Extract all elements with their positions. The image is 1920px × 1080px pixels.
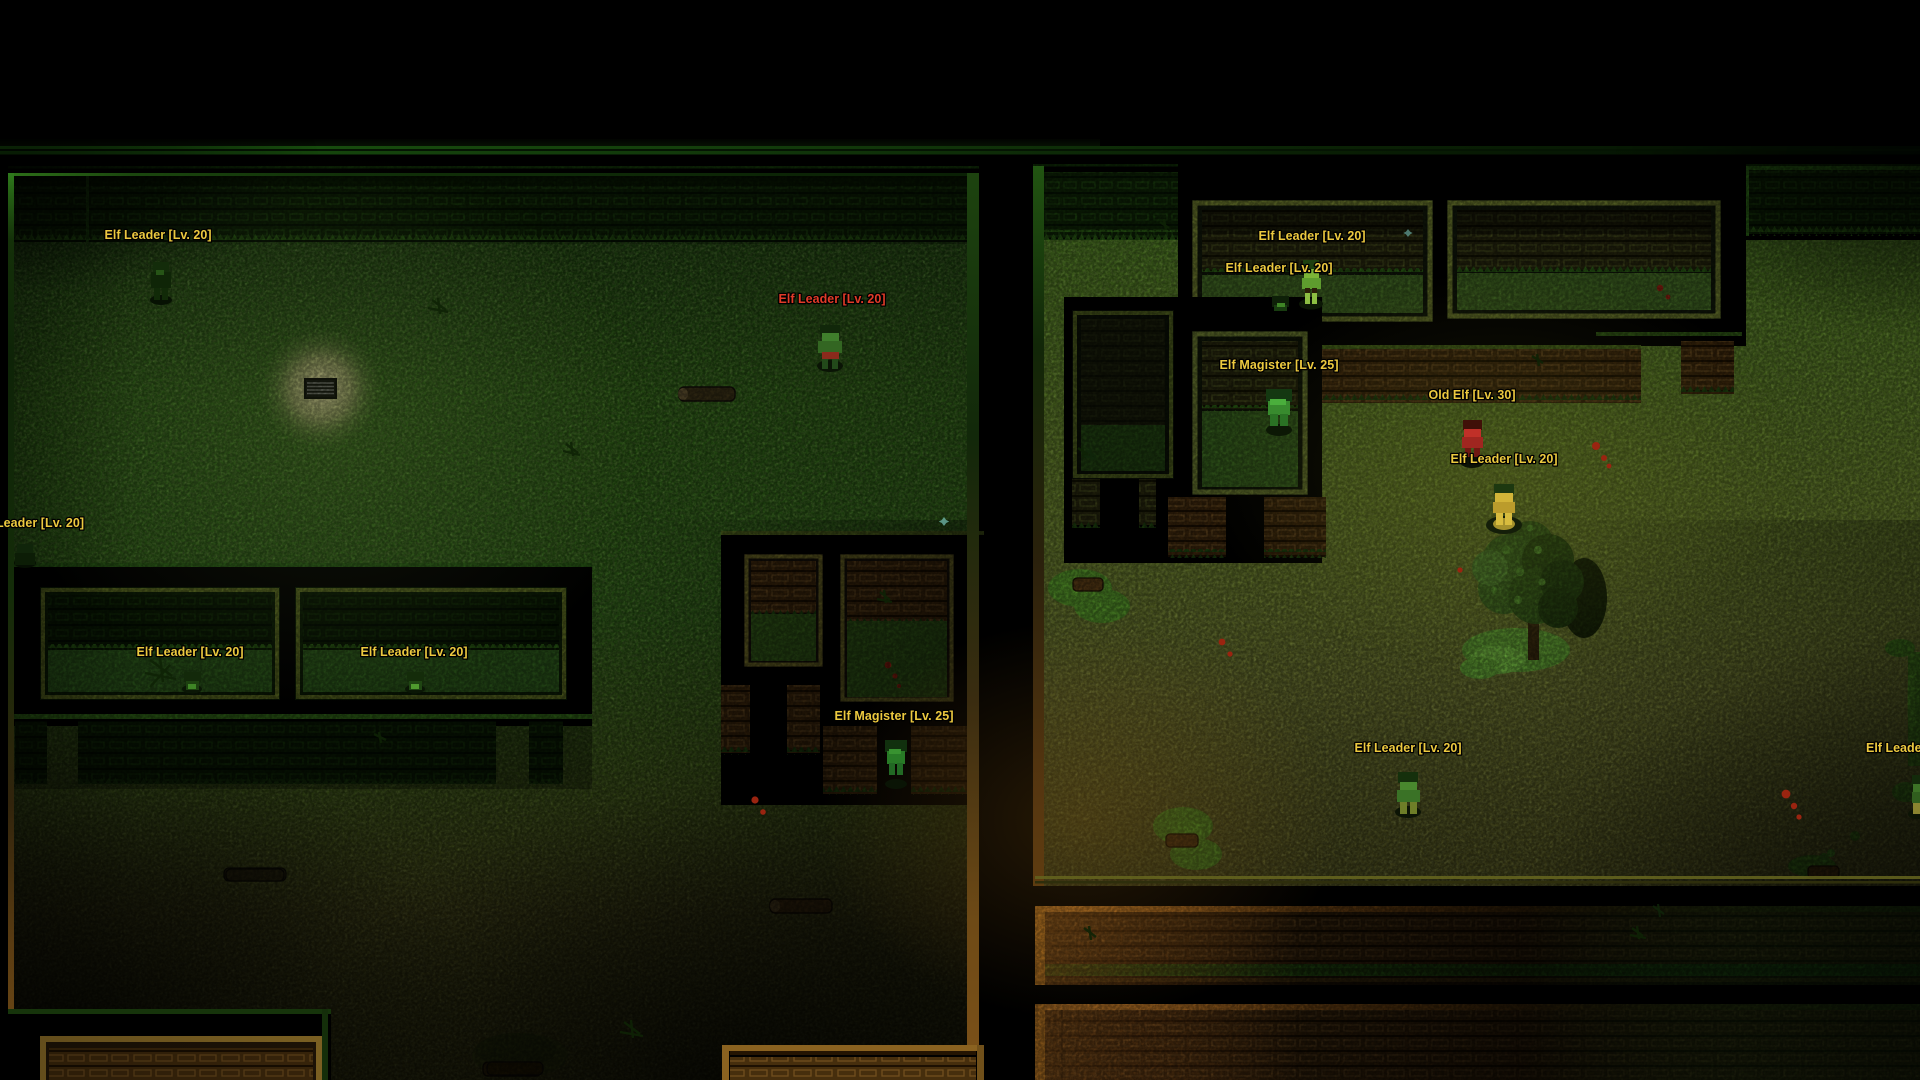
svg-text:Elf Leader [Lv. 20]: Elf Leader [Lv. 20] [1451,452,1558,466]
svg-text:Elf Magister [Lv. 25]: Elf Magister [Lv. 25] [1220,358,1339,372]
svg-text:Elf Leader [Lv. 20]: Elf Leader [Lv. 20] [137,645,244,659]
svg-text:Elf Leader [Lv. 20]: Elf Leader [Lv. 20] [105,228,212,242]
svg-text:Elf Leader [Lv. 20]: Elf Leader [Lv. 20] [1259,229,1366,243]
svg-text:Elf Leader [Lv. 20]: Elf Leader [Lv. 20] [1226,261,1333,275]
svg-text:Elf Leader [Lv. 2: Elf Leader [Lv. 2 [1866,741,1920,755]
svg-text:Elf Leader [Lv. 20]: Elf Leader [Lv. 20] [1355,741,1462,755]
svg-text:Elf Leader [Lv. 20]: Elf Leader [Lv. 20] [779,292,886,306]
svg-text:Leader [Lv. 20]: Leader [Lv. 20] [0,516,84,530]
svg-text:Old Elf [Lv. 30]: Old Elf [Lv. 30] [1429,388,1516,402]
svg-text:Elf Leader [Lv. 20]: Elf Leader [Lv. 20] [361,645,468,659]
svg-text:Elf Magister [Lv. 25]: Elf Magister [Lv. 25] [835,709,954,723]
